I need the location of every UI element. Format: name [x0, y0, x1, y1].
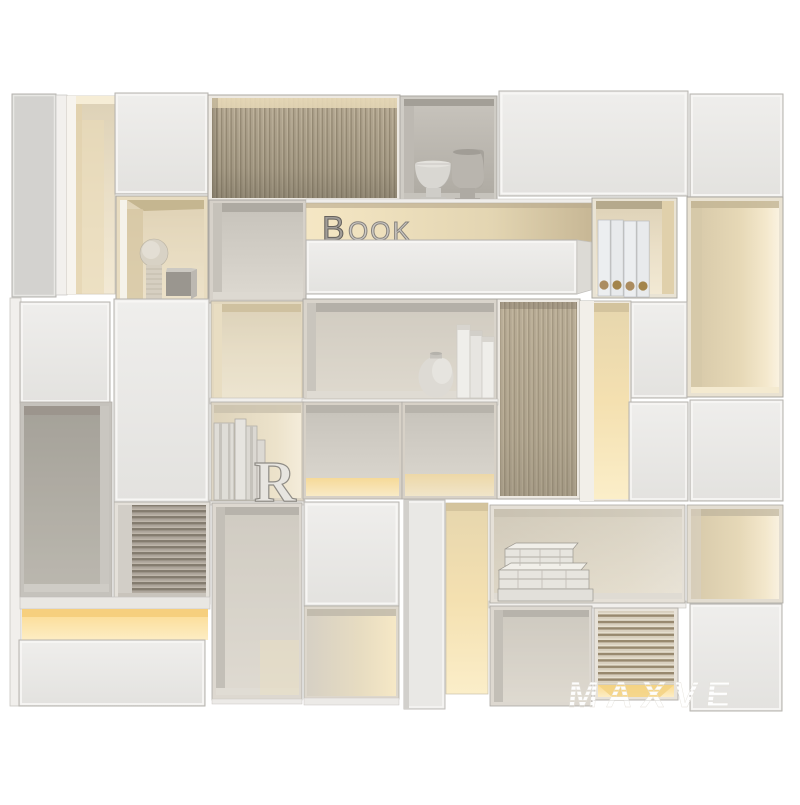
svg-text:MAXVE: MAXVE	[566, 674, 741, 715]
